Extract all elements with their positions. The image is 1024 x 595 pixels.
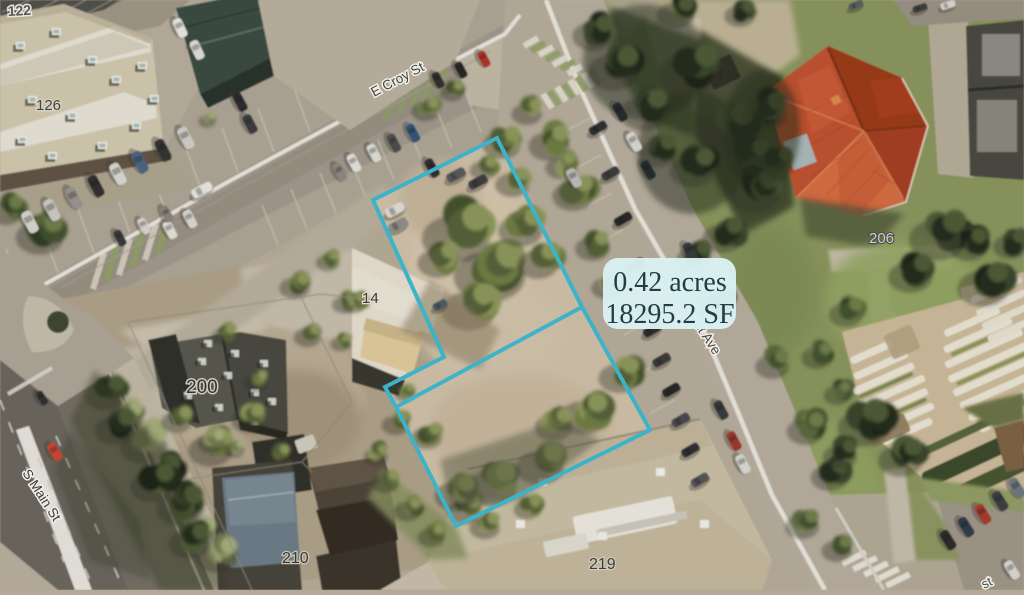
svg-text:122: 122 [7,2,31,19]
svg-text:210: 210 [282,550,309,567]
svg-text:206: 206 [869,230,894,247]
svg-text:219: 219 [589,556,616,573]
svg-text:200: 200 [186,377,218,398]
svg-text:14: 14 [362,290,379,307]
svg-text:18295.2 SF: 18295.2 SF [605,299,734,330]
svg-text:126: 126 [36,97,61,114]
svg-text:0.42 acres: 0.42 acres [613,267,727,298]
